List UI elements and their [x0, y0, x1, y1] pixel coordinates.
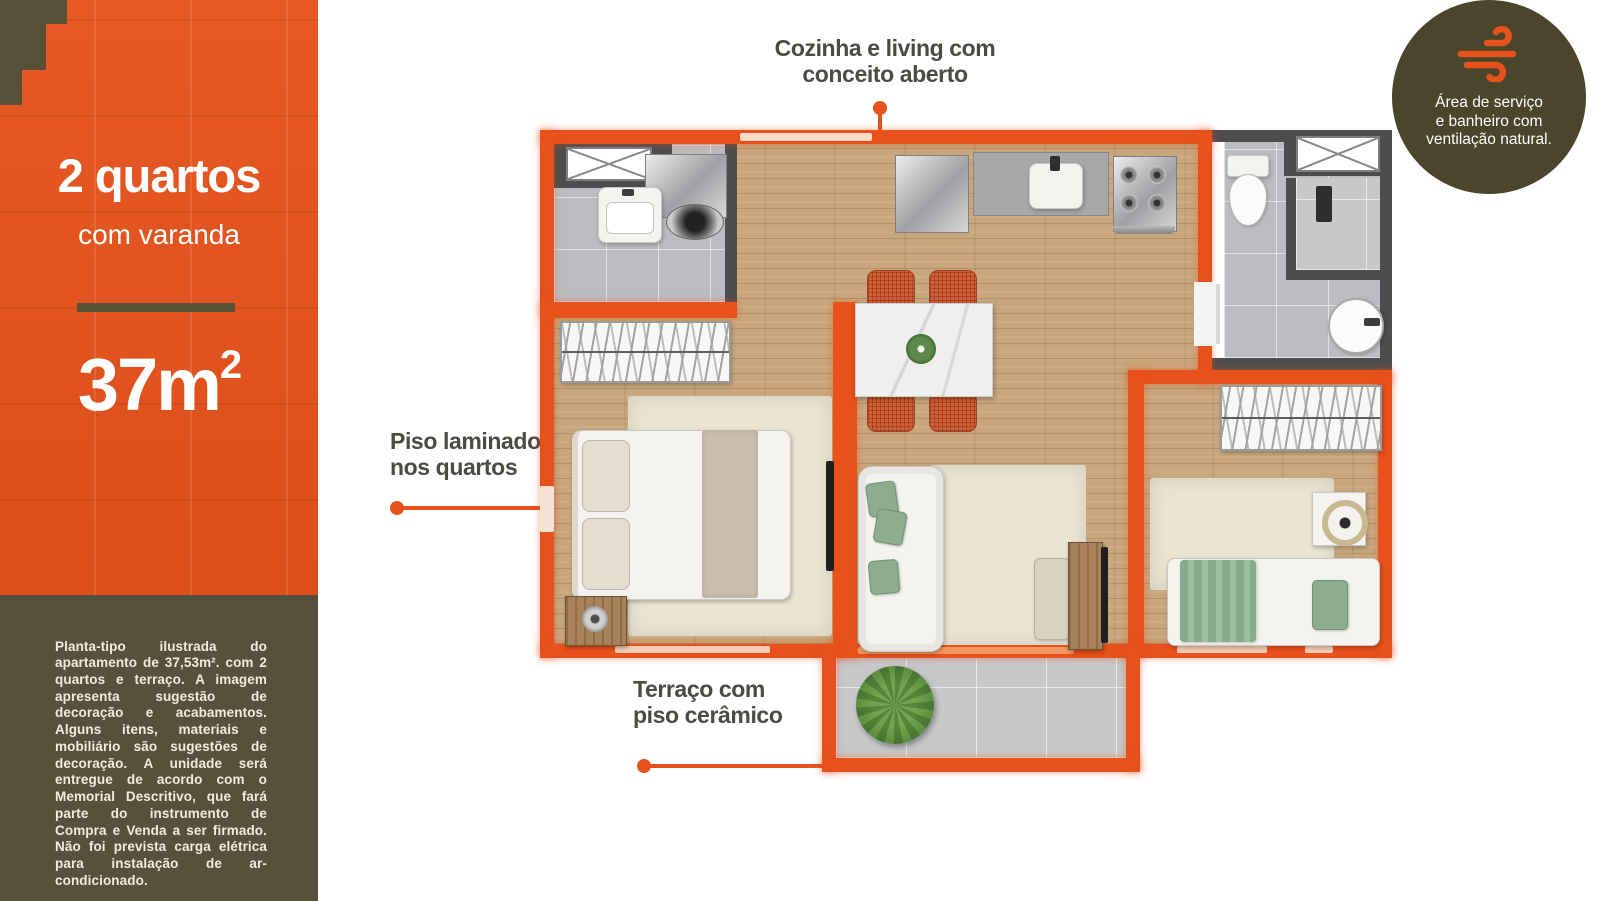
badge-line2: e banheiro com [1436, 113, 1543, 130]
annotation-kitchen: Cozinha e living com conceito aberto [735, 36, 1035, 88]
corner-decoration [0, 70, 22, 105]
terrace-plant [856, 666, 934, 744]
corner-decoration [0, 0, 46, 70]
sofa-pillow [872, 508, 907, 547]
terrace-wall-bottom [822, 758, 1140, 772]
single-bed-blanket [1180, 560, 1256, 642]
bathroom-wall-bottom [1212, 358, 1392, 370]
round-sink [1328, 298, 1384, 354]
floorplan-poster: 2 quartos com varanda 37m2 Planta-tipo i… [0, 0, 1600, 901]
laundry-faucet [622, 189, 634, 196]
bed-pillow [582, 518, 630, 590]
side-table-decor [1322, 500, 1368, 546]
laundry-tank-basin [606, 202, 654, 234]
dining-chair [929, 392, 977, 432]
bedroom1-side-window [540, 486, 554, 532]
service-bedroom1-wall [540, 302, 737, 318]
corner-decoration [46, 0, 67, 24]
sofa-pillow [868, 559, 901, 595]
bedroom2-wall-top [1128, 370, 1392, 384]
wind-icon [1453, 26, 1525, 82]
page-title: 2 quartos [0, 148, 318, 203]
page-subtitle: com varanda [0, 219, 318, 251]
divider [77, 303, 235, 312]
sidebar-orange-panel: 2 quartos com varanda 37m2 [0, 0, 318, 595]
stove-burner [1120, 166, 1138, 184]
bedroom2-wardrobe [1220, 385, 1382, 451]
unit-wall-top [540, 130, 1212, 144]
bedroom1-wardrobe [560, 321, 731, 383]
stove-handle [1113, 226, 1175, 234]
annotation-laminate-line1: Piso laminado [390, 428, 541, 454]
dining-chair [867, 392, 915, 432]
bedroom1-tv [826, 461, 834, 571]
sidebar-olive-panel: Planta-tipo ilustrada do apartamento de … [0, 595, 318, 901]
bedroom2-window-a [1177, 646, 1267, 653]
bedroom1-living-wall [833, 302, 857, 658]
leader-line-laminate [397, 506, 554, 510]
bed-blanket [702, 430, 758, 598]
sink-faucet [1364, 318, 1380, 326]
bedroom1-window [615, 646, 770, 653]
bedroom2-window-b [1305, 646, 1333, 653]
legal-disclaimer: Planta-tipo ilustrada do apartamento de … [55, 639, 267, 890]
annotation-laminate: Piso laminado nos quartos [390, 429, 560, 481]
stove-burner [1120, 194, 1138, 212]
area-exponent: 2 [220, 343, 240, 387]
shower-wall-left [1286, 178, 1296, 280]
bathroom-door-leaf [1216, 284, 1220, 344]
shower-drain [1316, 186, 1332, 222]
nightstand-lamp [582, 606, 608, 632]
bedroom2-wall-left [1128, 370, 1144, 658]
single-bed-pillow [1312, 580, 1348, 630]
service-window [566, 147, 652, 181]
washing-machine-door [666, 204, 724, 240]
badge-line3: ventilação natural. [1426, 131, 1552, 148]
shower-wall-bottom [1286, 270, 1380, 280]
floor-plan [540, 130, 1392, 772]
area-number: 37m [78, 343, 220, 426]
bathroom-window [1296, 136, 1380, 172]
annotation-kitchen-line2: conceito aberto [802, 61, 967, 87]
table-centerpiece [906, 334, 936, 364]
unit-wall-left [540, 130, 554, 658]
kitchen-window [740, 133, 872, 141]
kitchen-faucet [1050, 156, 1060, 171]
annotation-kitchen-line1: Cozinha e living com [775, 35, 996, 61]
terrace-wall-left [822, 644, 836, 772]
living-tv [1101, 547, 1108, 643]
shower-floor [1296, 178, 1380, 270]
refrigerator [895, 155, 969, 233]
badge-line1: Área de serviço [1435, 94, 1543, 111]
ventilation-badge: Área de serviço e banheiro com ventilaçã… [1392, 0, 1586, 194]
bathroom-door-opening [1194, 282, 1216, 346]
badge-text: Área de serviço e banheiro com ventilaçã… [1392, 94, 1586, 150]
area-value: 37m2 [0, 342, 318, 427]
annotation-laminate-line2: nos quartos [390, 454, 517, 480]
stove-burner [1148, 166, 1166, 184]
bed-pillow [582, 440, 630, 512]
pouf [1034, 558, 1070, 640]
terrace-wall-right [1126, 644, 1140, 772]
stove-burner [1148, 194, 1166, 212]
tv-rack [1068, 542, 1103, 650]
